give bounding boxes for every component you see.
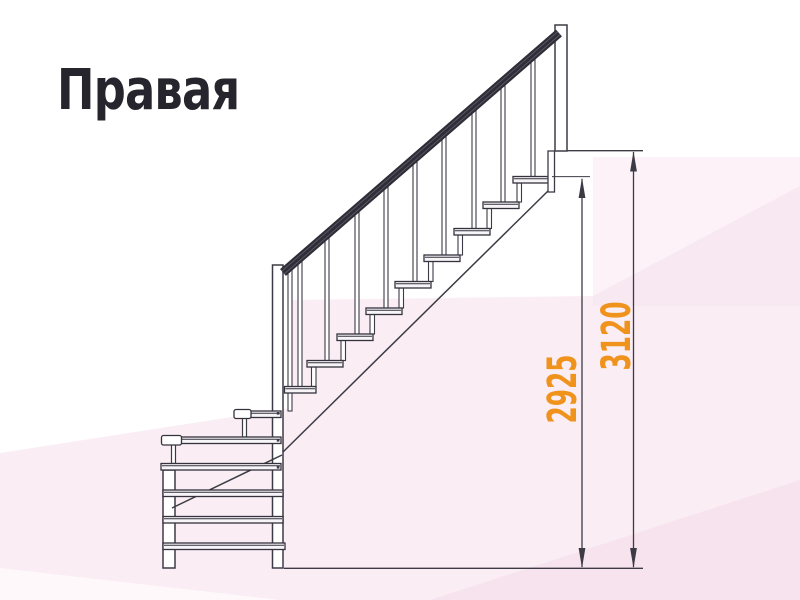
top-bracket [548, 151, 555, 192]
arrow-up [579, 178, 586, 198]
handrail [282, 32, 560, 274]
winder-support [243, 418, 247, 438]
page-title: Правая [57, 58, 239, 123]
staircase-drawing-page: Правая 2925 3120 [0, 0, 800, 600]
top-post [555, 25, 567, 151]
winder-support [172, 444, 176, 464]
background-polygons [0, 157, 800, 600]
tread-end-cap [234, 410, 251, 419]
dimension-label-3120: 3120 [597, 301, 637, 370]
tread-end-cap [162, 436, 182, 446]
dimension-label-2925: 2925 [543, 354, 583, 423]
